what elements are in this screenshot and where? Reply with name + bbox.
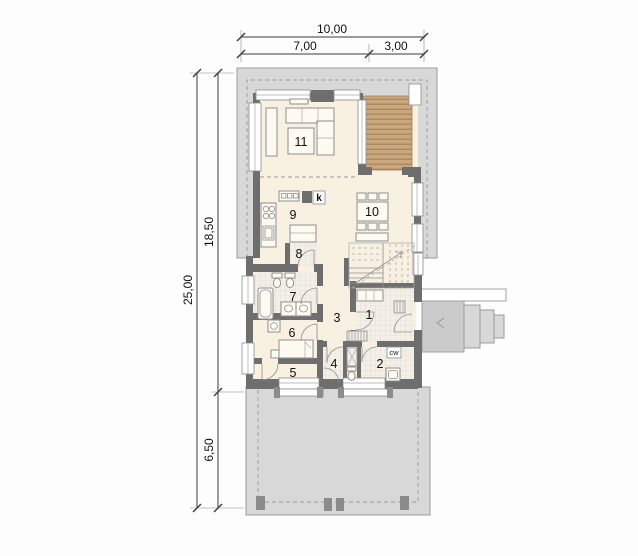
- room-label-2: 2: [377, 357, 384, 371]
- bidet: [286, 278, 293, 287]
- floor-plan-canvas: 11 10 9 8 7 6 5 4 3 2 1 k cw 10,00 7,00 …: [0, 0, 638, 556]
- nightstand: [271, 350, 279, 358]
- dim-top-total: 10,00: [317, 22, 347, 36]
- carport-post: [400, 496, 409, 510]
- sideboard: [356, 233, 388, 241]
- room-label-11: 11: [295, 135, 308, 149]
- fireplace-label: k: [316, 193, 322, 204]
- dim-top-right: 3,00: [384, 39, 408, 53]
- doormat: [394, 301, 405, 313]
- porch-step: [494, 315, 504, 338]
- kitchen-island: [290, 225, 316, 242]
- porch-canopy: [416, 289, 506, 301]
- carport-terrace: [246, 387, 430, 515]
- toilet: [273, 278, 280, 287]
- carport-post: [336, 498, 344, 511]
- dim-top-left: 7,00: [293, 39, 317, 53]
- entrance-porch: [416, 289, 506, 352]
- shelf-cabinet: [266, 108, 277, 156]
- dim-side-lower: 6,50: [202, 438, 216, 462]
- chimney-pier: [311, 90, 334, 102]
- porch-step: [464, 305, 480, 348]
- room-label-5: 5: [290, 366, 297, 380]
- bench: [357, 290, 383, 301]
- porch-platform: [422, 301, 464, 352]
- carport-post: [324, 498, 332, 511]
- room-label-10: 10: [365, 205, 379, 219]
- porch-step: [480, 310, 494, 343]
- hot-water-label: cw: [389, 348, 399, 357]
- terrace-column: [409, 84, 421, 105]
- fireplace-icon: [302, 191, 312, 203]
- room-label-7: 7: [290, 290, 297, 304]
- room-label-8: 8: [296, 247, 303, 261]
- wood-deck-terrace: [363, 96, 412, 170]
- room-label-9: 9: [290, 208, 297, 222]
- room-label-3: 3: [334, 311, 341, 325]
- room-label-4: 4: [331, 357, 338, 371]
- toilet: [348, 372, 355, 381]
- carport-post: [256, 496, 265, 510]
- wardrobe: [347, 331, 367, 341]
- floor-plan-page: 11 10 9 8 7 6 5 4 3 2 1 k cw 10,00 7,00 …: [0, 0, 638, 556]
- room-label-6: 6: [289, 326, 296, 340]
- room-label-1: 1: [366, 308, 373, 322]
- dim-side-upper: 18,50: [202, 217, 216, 247]
- bed: [279, 340, 313, 358]
- dim-side-total: 25,00: [181, 275, 195, 305]
- tv-board: [290, 99, 308, 104]
